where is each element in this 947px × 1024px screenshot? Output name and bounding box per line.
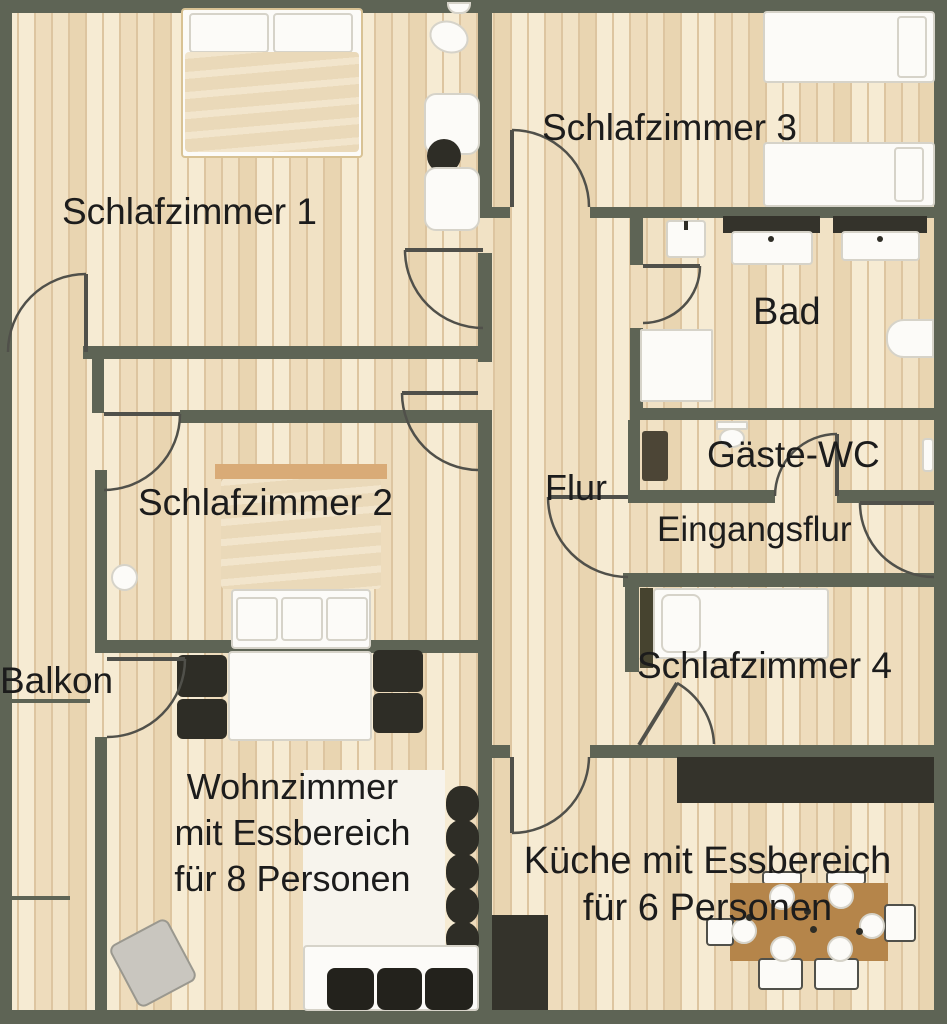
room-label-line: mit Essbereich: [130, 810, 455, 856]
room-label-schlafzimmer4: Schlafzimmer 4: [637, 645, 892, 687]
room-label-schlafzimmer1: Schlafzimmer 1: [62, 191, 317, 233]
room-label-line: für 8 Personen: [130, 856, 455, 902]
door-swing: [512, 757, 589, 833]
door-swing: [8, 274, 86, 352]
room-label-flur: Flur: [545, 467, 607, 509]
room-label-wohnzimmer: Wohnzimmer mit Essbereich für 8 Personen: [130, 764, 455, 902]
room-label-kueche: Küche mit Essbereich für 6 Personen: [480, 838, 935, 932]
room-label-schlafzimmer2: Schlafzimmer 2: [138, 482, 393, 524]
room-label-balkon: Balkon: [0, 660, 113, 702]
door-swing: [402, 393, 478, 470]
door-swing: [405, 250, 483, 328]
door-schlafzimmer4: [639, 683, 677, 745]
room-label-line: Küche mit Essbereich: [480, 838, 935, 885]
door-swing: [107, 659, 185, 737]
door-swing: [104, 414, 180, 490]
room-label-eingangsflur: Eingangsflur: [657, 510, 852, 550]
door-swing: [548, 497, 628, 577]
room-label-line: für 6 Personen: [480, 885, 935, 932]
floor-plan: Schlafzimmer 1 Schlafzimmer 3 Bad Schlaf…: [0, 0, 947, 1024]
door-swing: [677, 683, 714, 744]
door-swing: [860, 503, 934, 577]
room-label-bad: Bad: [753, 291, 821, 334]
room-label-schlafzimmer3: Schlafzimmer 3: [542, 107, 797, 149]
door-swing: [643, 266, 700, 323]
room-label-line: Wohnzimmer: [130, 764, 455, 810]
room-label-gaeste-wc: Gäste-WC: [707, 434, 880, 476]
